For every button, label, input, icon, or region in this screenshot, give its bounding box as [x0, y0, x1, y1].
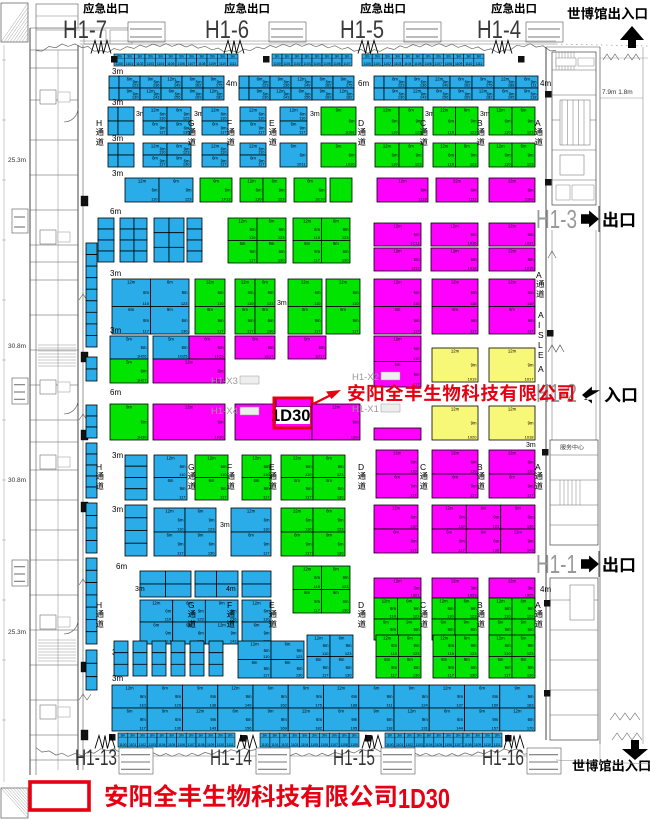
svg-text:6m: 6m [218, 420, 224, 425]
svg-text:6m: 6m [448, 606, 454, 611]
svg-text:130: 130 [337, 551, 344, 556]
svg-text:6m: 6m [408, 108, 414, 113]
svg-text:A: A [535, 600, 541, 610]
svg-text:123: 123 [398, 83, 405, 88]
svg-text:5m: 5m [304, 337, 310, 342]
svg-text:9m: 9m [528, 606, 534, 611]
svg-text:117: 117 [263, 673, 270, 678]
svg-text:6m: 6m [446, 530, 452, 535]
svg-text:6m: 6m [306, 518, 312, 523]
svg-text:130: 130 [398, 95, 405, 100]
svg-text:6m: 6m [152, 188, 158, 193]
svg-text:123: 123 [470, 130, 477, 135]
svg-text:9m: 9m [471, 153, 477, 158]
svg-text:1107: 1107 [188, 62, 195, 66]
svg-text:6m: 6m [471, 232, 477, 237]
svg-text:12m: 12m [393, 337, 402, 342]
svg-text:9m: 9m [343, 227, 349, 232]
svg-text:9m: 9m [165, 631, 171, 636]
svg-text:3m: 3m [426, 55, 431, 59]
svg-text:6m: 6m [333, 219, 339, 224]
svg-text:3m: 3m [446, 734, 451, 738]
svg-text:9m: 9m [326, 533, 332, 538]
svg-text:123: 123 [267, 301, 274, 306]
svg-text:4m: 4m [540, 79, 551, 88]
svg-text:110: 110 [305, 527, 312, 532]
svg-text:G: G [188, 118, 195, 128]
svg-text:1107: 1107 [435, 62, 442, 66]
svg-text:9m: 9m [528, 363, 534, 368]
svg-text:9m: 9m [264, 542, 270, 547]
svg-text:6m: 6m [343, 249, 349, 254]
svg-text:3m: 3m [322, 734, 327, 738]
svg-text:9m: 9m [303, 686, 309, 691]
svg-text:110: 110 [352, 301, 359, 306]
svg-text:3m: 3m [220, 522, 230, 529]
svg-text:9m: 9m [314, 599, 320, 604]
svg-text:12m: 12m [231, 686, 240, 691]
svg-text:3m: 3m [199, 55, 204, 59]
svg-text:1106: 1106 [178, 743, 185, 747]
svg-text:1D17: 1D17 [315, 354, 325, 359]
svg-text:12m: 12m [247, 179, 256, 184]
svg-text:3m: 3m [305, 55, 310, 59]
svg-text:6m: 6m [269, 219, 275, 224]
svg-text:3m: 3m [495, 734, 500, 738]
svg-text:9m: 9m [338, 464, 344, 469]
svg-text:117: 117 [258, 130, 265, 135]
svg-text:9m: 9m [387, 694, 393, 699]
svg-text:6m: 6m [212, 122, 218, 127]
svg-text:6m: 6m [528, 290, 534, 295]
svg-text:6m: 6m [395, 307, 401, 312]
svg-text:1103: 1103 [394, 62, 401, 66]
svg-text:1019: 1019 [468, 377, 478, 382]
svg-text:110: 110 [314, 301, 321, 306]
svg-text:117: 117 [179, 495, 186, 500]
svg-text:110: 110 [470, 301, 477, 306]
svg-text:1103: 1103 [303, 62, 310, 66]
svg-text:5m: 5m [168, 337, 174, 342]
svg-text:9m: 9m [221, 486, 227, 491]
svg-text:3m: 3m [475, 734, 480, 738]
svg-text:110: 110 [322, 651, 329, 656]
svg-text:9m: 9m [186, 188, 192, 193]
svg-text:9m: 9m [505, 627, 511, 632]
svg-text:6m: 6m [268, 318, 274, 323]
svg-text:3m: 3m [112, 169, 123, 178]
svg-text:12m: 12m [165, 509, 174, 514]
svg-text:6m: 6m [448, 643, 454, 648]
svg-text:123: 123 [278, 197, 285, 202]
svg-text:6m: 6m [414, 346, 420, 351]
svg-text:9m: 9m [528, 484, 534, 489]
svg-text:110: 110 [143, 301, 150, 306]
svg-text:123: 123 [337, 527, 344, 532]
svg-text:H1-2: H1-2 [536, 378, 577, 408]
svg-text:9m: 9m [143, 318, 149, 323]
svg-text:9m: 9m [528, 539, 534, 544]
svg-text:9m: 9m [269, 241, 275, 246]
svg-text:163: 163 [527, 703, 534, 708]
svg-text:3m: 3m [295, 55, 300, 59]
svg-text:1E17: 1E17 [264, 354, 274, 359]
svg-text:12m: 12m [249, 108, 258, 113]
svg-text:H1-15: H1-15 [333, 745, 375, 770]
svg-text:110: 110 [391, 651, 398, 656]
svg-text:110: 110 [220, 150, 227, 155]
svg-text:6m: 6m [505, 119, 511, 124]
svg-text:6m: 6m [281, 694, 287, 699]
svg-text:162: 162 [464, 83, 471, 88]
svg-text:131: 131 [421, 726, 428, 731]
svg-text:6m: 6m [285, 642, 291, 647]
svg-text:9m: 9m [391, 665, 397, 670]
svg-text:9m: 9m [175, 694, 181, 699]
svg-text:3m: 3m [150, 734, 155, 738]
svg-text:1D08: 1D08 [345, 130, 355, 135]
svg-text:6m: 6m [209, 542, 215, 547]
svg-text:6m: 6m [180, 464, 186, 469]
svg-text:6m: 6m [414, 627, 420, 632]
svg-text:9m: 9m [338, 518, 344, 523]
svg-text:6m: 6m [521, 636, 527, 641]
svg-text:3m: 3m [416, 55, 421, 59]
svg-text:3m: 3m [121, 734, 126, 738]
svg-text:9m: 9m [409, 686, 415, 691]
svg-text:6m: 6m [391, 643, 397, 648]
svg-text:6m: 6m [152, 122, 158, 127]
svg-text:143: 143 [420, 95, 427, 100]
svg-text:6m: 6m [528, 665, 534, 670]
svg-text:9m: 9m [323, 665, 329, 670]
svg-text:6m: 6m [254, 623, 260, 628]
svg-text:6m: 6m [316, 717, 322, 722]
svg-text:6m: 6m [452, 307, 458, 312]
svg-text:9m: 9m [248, 318, 254, 323]
svg-text:12m: 12m [440, 144, 449, 149]
svg-text:1112: 1112 [411, 266, 420, 271]
svg-text:6m: 6m [165, 609, 171, 614]
svg-text:3m: 3m [456, 55, 461, 59]
svg-text:3m: 3m [446, 55, 451, 59]
svg-text:6m: 6m [528, 257, 534, 262]
svg-text:169: 169 [325, 95, 332, 100]
svg-text:1113: 1113 [418, 197, 427, 202]
svg-text:6m: 6m [207, 307, 213, 312]
svg-text:9m: 9m [306, 486, 312, 491]
svg-text:136: 136 [210, 703, 217, 708]
svg-text:130: 130 [527, 673, 534, 678]
svg-text:9m: 9m [514, 686, 520, 691]
svg-text:3m: 3m [228, 734, 233, 738]
svg-text:117: 117 [159, 162, 166, 167]
svg-text:6m: 6m [414, 290, 420, 295]
svg-text:1104: 1104 [158, 743, 165, 747]
svg-text:12m: 12m [249, 144, 258, 149]
svg-text:6m: 6m [528, 232, 534, 237]
svg-text:9m: 9m [262, 307, 268, 312]
svg-text:1100: 1100 [119, 743, 126, 747]
svg-text:12m: 12m [496, 599, 505, 604]
svg-text:6m: 6m [178, 518, 184, 523]
svg-text:6m: 6m [248, 290, 254, 295]
svg-text:144: 144 [456, 726, 463, 731]
svg-text:6m: 6m [528, 627, 534, 632]
svg-text:E: E [269, 118, 275, 128]
svg-text:25.3m: 25.3m [8, 629, 26, 636]
svg-text:6m: 6m [340, 307, 346, 312]
svg-text:3m: 3m [168, 55, 173, 59]
svg-text:12m: 12m [393, 249, 402, 254]
svg-text:A: A [535, 118, 541, 128]
svg-text:123: 123 [527, 651, 534, 656]
svg-text:1108: 1108 [445, 62, 452, 66]
svg-text:9m: 9m [457, 694, 463, 699]
svg-text:12m: 12m [127, 280, 136, 285]
svg-text:6m: 6m [338, 709, 344, 714]
svg-text:9m: 9m [268, 290, 274, 295]
svg-text:6m: 6m [209, 478, 215, 483]
svg-text:6m: 6m [441, 657, 447, 662]
svg-text:130: 130 [342, 608, 349, 613]
svg-text:9m: 9m [336, 108, 342, 113]
svg-text:6m: 6m [140, 694, 146, 699]
svg-text:6m: 6m [128, 307, 134, 312]
svg-text:6m: 6m [264, 518, 270, 523]
svg-text:169: 169 [280, 726, 287, 731]
svg-text:6m: 6m [264, 648, 270, 653]
svg-text:6m: 6m [268, 345, 274, 350]
svg-text:110: 110 [165, 617, 172, 622]
svg-text:124: 124 [421, 703, 428, 708]
svg-text:12m: 12m [451, 407, 460, 412]
svg-text:162: 162 [195, 83, 202, 88]
svg-text:110: 110 [258, 116, 265, 121]
svg-text:6m: 6m [505, 153, 511, 158]
svg-text:1101: 1101 [283, 62, 290, 66]
svg-text:123: 123 [278, 235, 285, 240]
svg-text:110: 110 [159, 150, 166, 155]
svg-text:9m: 9m [285, 660, 291, 665]
svg-text:6m: 6m [141, 345, 147, 350]
svg-text:130: 130 [345, 673, 352, 678]
svg-text:5m: 5m [126, 337, 132, 342]
svg-text:6m: 6m [218, 345, 224, 350]
svg-text:195: 195 [508, 95, 515, 100]
svg-text:12m: 12m [218, 623, 227, 628]
svg-text:9m: 9m [209, 518, 215, 523]
svg-text:6m: 6m [254, 478, 260, 483]
svg-text:3m: 3m [282, 734, 287, 738]
svg-text:6m: 6m [459, 515, 465, 520]
svg-text:188: 188 [508, 83, 515, 88]
svg-text:110: 110 [448, 651, 455, 656]
svg-text:130: 130 [208, 551, 215, 556]
svg-text:1F30: 1F30 [214, 435, 224, 440]
svg-text:9m: 9m [198, 533, 204, 538]
svg-text:12m: 12m [166, 456, 175, 461]
svg-text:1106: 1106 [178, 62, 185, 66]
svg-text:3m: 3m [427, 734, 432, 738]
svg-text:3m: 3m [117, 55, 122, 59]
svg-text:12m: 12m [151, 108, 160, 113]
svg-text:136: 136 [283, 83, 290, 88]
svg-text:12m: 12m [408, 709, 417, 714]
svg-text:3m: 3m [277, 300, 287, 307]
svg-text:130: 130 [342, 258, 349, 263]
svg-text:E: E [538, 350, 544, 360]
svg-text:9m: 9m [458, 89, 464, 94]
svg-text:12m: 12m [138, 179, 147, 184]
svg-text:12m: 12m [351, 435, 359, 440]
svg-text:123: 123 [470, 162, 477, 167]
svg-text:12m: 12m [383, 144, 392, 149]
svg-text:117: 117 [177, 551, 184, 556]
svg-text:12m: 12m [508, 280, 517, 285]
svg-text:12m: 12m [393, 280, 402, 285]
svg-text:D: D [358, 462, 364, 472]
svg-text:12m: 12m [508, 349, 517, 354]
svg-text:12m: 12m [314, 636, 323, 641]
svg-text:136: 136 [153, 83, 160, 88]
svg-text:6m: 6m [306, 464, 312, 469]
svg-text:3m: 3m [407, 734, 412, 738]
svg-text:110: 110 [305, 472, 312, 477]
svg-text:9m: 9m [528, 694, 534, 699]
svg-text:1103: 1103 [291, 743, 298, 747]
svg-text:5m: 5m [252, 337, 258, 342]
svg-text:6m: 6m [176, 108, 182, 113]
svg-text:6m: 6m [141, 420, 147, 425]
svg-text:6m: 6m [319, 188, 325, 193]
svg-text:12m: 12m [451, 280, 460, 285]
svg-text:182: 182 [315, 726, 322, 731]
svg-text:12m: 12m [238, 219, 247, 224]
svg-text:12m: 12m [185, 405, 194, 410]
svg-text:9m: 9m [422, 717, 428, 722]
svg-text:9m: 9m [524, 89, 530, 94]
svg-text:6m: 6m [314, 227, 320, 232]
svg-text:9m: 9m [414, 318, 420, 323]
svg-text:3m: 3m [528, 586, 534, 591]
svg-text:6m: 6m [528, 188, 534, 193]
svg-text:110: 110 [299, 116, 306, 121]
svg-text:117: 117 [470, 329, 477, 334]
svg-text:110: 110 [504, 162, 511, 167]
svg-text:117: 117 [470, 493, 477, 498]
svg-text:9m: 9m [411, 484, 417, 489]
svg-text:6m: 6m [110, 388, 121, 397]
svg-text:6m: 6m [464, 636, 470, 641]
svg-text:3m: 3m [417, 734, 422, 738]
svg-text:9m: 9m [167, 307, 173, 312]
svg-text:3m: 3m [220, 55, 225, 59]
svg-text:H1-1: H1-1 [536, 549, 577, 579]
svg-text:12m: 12m [451, 349, 460, 354]
svg-text:1103: 1103 [148, 743, 155, 747]
svg-text:123: 123 [470, 651, 477, 656]
svg-text:157: 157 [492, 726, 499, 731]
svg-text:182: 182 [216, 95, 223, 100]
svg-text:130: 130 [174, 726, 181, 731]
svg-text:3m: 3m [218, 734, 223, 738]
svg-text:9m: 9m [182, 290, 188, 295]
svg-text:3m: 3m [352, 734, 357, 738]
svg-text:9m: 9m [336, 144, 342, 149]
svg-text:118: 118 [386, 726, 393, 731]
svg-text:6m: 6m [414, 232, 420, 237]
svg-text:6m: 6m [279, 249, 285, 254]
svg-text:130: 130 [132, 95, 139, 100]
svg-text:9m: 9m [333, 590, 339, 595]
svg-text:1018: 1018 [525, 435, 535, 440]
svg-text:3m: 3m [130, 734, 135, 738]
svg-text:1H26: 1H26 [137, 354, 147, 359]
svg-text:12m: 12m [496, 108, 505, 113]
svg-text:6m: 6m [521, 144, 527, 149]
svg-text:6m: 6m [411, 460, 417, 465]
svg-text:117: 117 [322, 673, 329, 678]
svg-text:110: 110 [159, 116, 166, 121]
svg-text:12m: 12m [383, 108, 392, 113]
svg-text:B: B [477, 462, 483, 472]
svg-text:9m: 9m [464, 657, 470, 662]
svg-text:117: 117 [527, 329, 534, 334]
svg-text:156: 156 [245, 726, 252, 731]
svg-text:117: 117 [159, 130, 166, 135]
svg-text:110: 110 [247, 301, 254, 306]
svg-text:110: 110 [447, 614, 454, 619]
svg-text:6m: 6m [291, 122, 297, 127]
svg-text:110: 110 [448, 162, 455, 167]
svg-text:117: 117 [247, 329, 254, 334]
svg-text:9m: 9m [343, 575, 349, 580]
svg-text:12m: 12m [252, 456, 261, 461]
svg-text:6m: 6m [492, 694, 498, 699]
svg-text:123: 123 [413, 651, 420, 656]
svg-text:12m: 12m [451, 451, 460, 456]
svg-text:6m: 6m [528, 717, 534, 722]
svg-text:12m: 12m [393, 224, 402, 229]
svg-text:9m: 9m [505, 665, 511, 670]
svg-text:3m: 3m [169, 734, 174, 738]
svg-text:117: 117 [139, 726, 146, 731]
svg-text:6m: 6m [250, 156, 256, 161]
svg-text:6m: 6m [323, 643, 329, 648]
svg-text:123: 123 [174, 703, 181, 708]
svg-text:110: 110 [217, 301, 224, 306]
svg-text:117: 117 [504, 673, 511, 678]
svg-text:110: 110 [314, 235, 321, 240]
svg-text:9m: 9m [515, 506, 521, 511]
svg-text:H1-3: H1-3 [536, 204, 577, 234]
svg-text:110: 110 [504, 614, 511, 619]
svg-text:12m: 12m [445, 506, 454, 511]
svg-text:6m: 6m [471, 665, 477, 670]
svg-text:130: 130 [296, 673, 303, 678]
svg-text:6m: 6m [528, 515, 534, 520]
svg-text:E: E [269, 462, 275, 472]
svg-text:12m: 12m [496, 636, 505, 641]
svg-text:6m: 6m [291, 144, 297, 149]
svg-text:110: 110 [391, 130, 398, 135]
svg-text:169: 169 [195, 95, 202, 100]
svg-text:110: 110 [527, 301, 534, 306]
svg-text:1102: 1102 [139, 743, 146, 747]
svg-text:9m: 9m [306, 542, 312, 547]
svg-text:6m: 6m [349, 153, 355, 158]
